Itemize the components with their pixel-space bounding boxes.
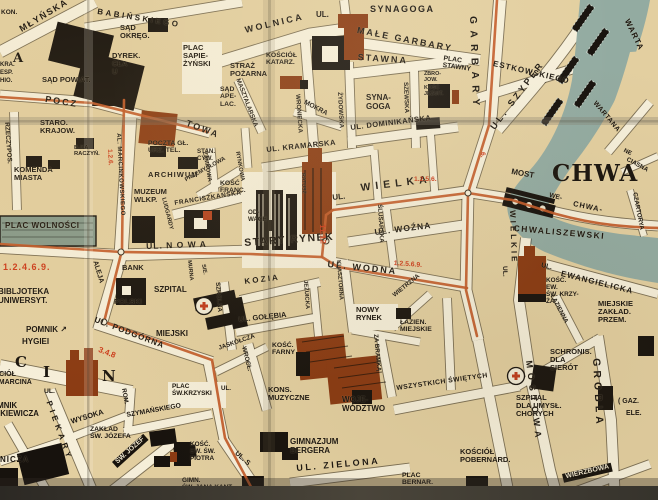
map-label: ŻYDOWSKA [335,92,344,128]
map-label: WOJE- WÓDZTWO [342,396,385,413]
map-label: MURNA [185,260,193,281]
map-label: BANK [122,264,144,272]
map-label: KOŚCIÓŁ ŚW. MARCINA [0,371,32,386]
map-label: STRAŻ POŻARNA [230,62,267,78]
map-label: POCZ [44,95,78,110]
map-label: KONS. MUZYCZNE [268,386,310,402]
map-label: MAŁE GARBARY [356,26,453,54]
map-label: GARBARY [466,16,480,112]
map-label: CHWA- [572,200,603,214]
map-label: UL. N O W A [146,240,207,251]
map-label: SĄD POWIAT. [42,76,91,84]
map-label: UL. S [233,450,251,468]
map-label: NOWY RYNEK [356,306,382,322]
map-label: WIELKIE [507,210,518,265]
map-label: ESP. [0,70,13,76]
map-label: KOMENDA MIASTA [14,166,53,182]
map-label: K O Z I A [244,274,278,287]
map-label: GROBLA [590,358,605,428]
map-label: RYNKOWA [234,151,245,182]
map-label: UL. [332,193,346,203]
map-label: SYNAGOGA [370,5,435,15]
map-label: SZYMAŃSKIEGO [126,402,182,419]
map-label: HIO. [0,78,12,84]
map-label: AL. MARCINKOWSKIEGO [115,133,126,216]
map-label: MIEJSKI [156,330,188,339]
map-label: ALEJA [91,260,105,284]
map-label: UL. [44,388,55,395]
map-label: ZBRO- JOW. [424,72,441,84]
map-label: KOŚCIÓŁ POBERNARD. [460,448,510,464]
map-label: I [43,364,51,380]
map-label: MASZTALARSKA [234,78,259,128]
map-label: UL. ZIELONA [296,457,381,474]
map-label: 1.2.5.6.9. [393,260,422,269]
map-label: 11.12 [317,224,326,244]
map-label: MOKRA [303,99,329,118]
map-label: POCZTA GŁ. URZ. TEL. [148,140,188,155]
map-label: UL. [501,266,508,277]
map-label: CHWA [552,162,638,187]
map-label: KOŚĆ. FARNY [272,342,295,357]
map-label: KOŚĆ. EW. ŚW. PIOTRA [190,442,215,463]
map-label: SYNA- GOGA [366,94,391,111]
map-label: SCHRONIS. DLA SIERÓT [550,348,592,372]
map-label: UL. DOMINIKAŃSKA [350,114,432,132]
map-label: OD- WACH [248,210,267,223]
map-label: SĄD APE- LAC. [220,86,236,108]
map-label: DYREK. CŁA U [112,52,140,76]
map-label: SZEWSKA [401,82,409,113]
map-label: STARO. KRAJOW. [40,119,75,135]
map-label: PLAC WOLNOŚCI [5,222,80,231]
map-label: POLSKI [114,298,142,306]
map-label: GIMNAZJUM BERGERA [290,438,338,455]
map-label: 1.2.6. [106,149,114,166]
map-label: 6. [479,152,486,158]
map-label: SZPITAL [154,286,187,295]
map-label: JASKÓŁCZA [218,334,256,353]
map-label: UL. [221,386,231,393]
map-label: NICZA [0,456,29,465]
map-label: WROCŁ. [240,346,253,372]
city-map-scan: KON.MŁYŃSKABABIŃSKIEGOAKRA.ESP.HIO.SĄD O… [0,0,658,500]
map-label: UL. GOŁĘBIA [238,311,287,324]
map-label: UL. [540,262,552,272]
map-label: JEZUICKA [302,280,310,309]
map-label: MŁYŃSKA [18,0,70,34]
map-label: UL. [316,11,329,20]
map-label: WIETRZNA [392,273,422,299]
map-label: KRA. [0,62,15,68]
map-label: MIEJSKIE ZAKŁAD. PRZEM. [598,300,633,324]
map-label: WSZYSTKICH ŚWIĘTYCH [396,372,488,392]
map-label: WARTA [622,18,645,52]
map-label: KON. [1,9,17,16]
map-label: LUDGARDY [160,197,174,230]
map-label: PLAC ŚW.KRZYSKI [172,384,212,398]
map-label: ŚLUSARSKA [375,204,384,243]
map-label: ROM. [119,388,128,405]
map-label: KOŚĆ JEZUIT. [424,86,443,98]
map-label: SIE. [199,264,207,275]
scan-edge-strip [0,486,658,500]
map-label: RZECZYPOS. [3,122,13,164]
map-label: SZKOLNA [213,282,222,312]
map-label: WE- [548,192,563,202]
map-label: ZA BRAMKĄ [371,334,381,372]
map-label: 3.4.8 [97,346,117,360]
map-label: HYGIEI [22,338,49,347]
map-label: POMNIK MICKIEWICZA [0,402,39,419]
map-labels-layer: KON.MŁYŃSKABABIŃSKIEGOAKRA.ESP.HIO.SĄD O… [0,0,658,500]
map-label: WARTANA [591,100,621,134]
map-label: UL. KRAMARSKA [266,139,336,154]
map-label: 1.2.4.6.9. [3,263,51,273]
map-label: WOLNICA [244,12,305,35]
map-label: 1.2.5.6. [414,176,437,183]
map-label: KOŚCIÓŁ KATARZ. [266,52,297,67]
map-label: N [102,368,117,384]
map-label: PLAC SAPIE- ŻYŃSKI [183,44,211,68]
map-label: WYSOKA [70,408,105,426]
map-label: WRONIECKA [293,94,302,133]
map-label: RATUSZ [299,173,305,194]
map-label: C [15,354,28,370]
map-label: ( GAZ. [618,398,639,406]
map-label: STAWNA [357,53,408,66]
map-label: ZAKŁAD ŚW. JÓZEFA [90,426,131,441]
map-label: PIEKARY [44,400,74,462]
map-label: TOWA [185,119,221,141]
map-label: ELE. [626,410,642,418]
map-label: SĄD OKRĘG. [120,24,150,40]
map-label: MOST [511,168,535,181]
map-label: KOŚĆ FRANC. [220,180,246,195]
map-label: POMNIK ↗ [26,326,67,335]
map-label: BIBLJOTEKA UNIWERSYT. [0,288,49,305]
map-label: CHWALISZEWSKI [513,224,605,241]
map-label: ŁAZIEN. MIEJSKIE [400,319,432,334]
map-label: CZARTORYA [630,192,644,231]
map-label: B-KA RACZYŃ. [74,145,100,158]
